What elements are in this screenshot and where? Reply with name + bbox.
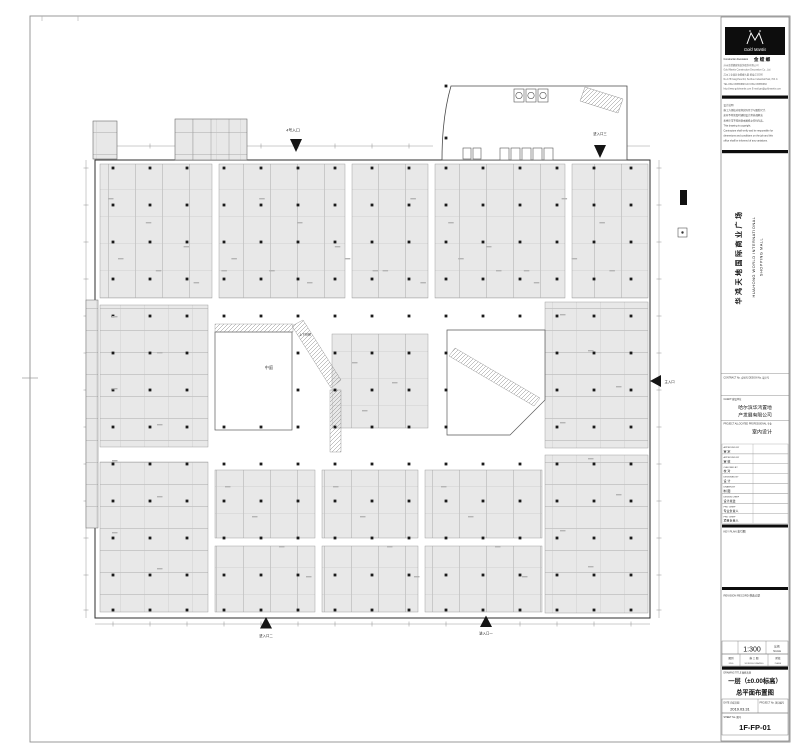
svg-text:项目负责人: 项目负责人 [724,518,739,523]
svg-text:阶段: 阶段 [775,656,781,660]
stair-core-block [93,121,117,159]
date-value: 2019.03.31 [730,707,749,712]
escalator-label: 上下扶梯 [299,332,311,337]
brand-line-en: Construction Decoration [724,58,749,61]
svg-text:审 核: 审 核 [724,458,731,463]
svg-text:office shall be informed of an: office shall be informed of any variatio… [724,140,768,143]
svg-text:dimensions and conditions on t: dimensions and conditions on the job and… [724,135,774,138]
brand-line-zh: 金 螳 螂 [753,56,771,63]
project-name-zh: 华鸿天地国际商业广场 [734,210,743,305]
scale-label-en: SCALE [773,650,781,653]
project-name-en2: SHOPPING MALL [759,238,764,277]
entrance-label: 进入口三 [593,131,607,136]
atrium-label: 中庭 [265,364,274,371]
drawing-sheet: 4号入口 进入口三 主入口 进入口二 进入口一 中庭 上下扶梯 [0,0,800,755]
project-name-en1: HUAHONG WORLD INTERNATIONAL [751,216,756,297]
client-name-line2: 产发展有限公司 [738,412,772,419]
legend-symbol-1 [680,190,687,205]
entrance-label: 4号入口 [286,128,300,133]
svg-text:Gold Mantis Construction Decor: Gold Mantis Construction Decoration Co.,… [724,69,772,72]
entrance-4: 4号入口 [286,128,302,153]
entrance-arrow-down-icon [290,139,302,152]
svg-text:Contractors shall verify and b: Contractors shall verify and be responsi… [724,130,774,133]
sheet-no-label: SHEET No. 图号 [724,715,742,719]
entrance-label: 进入口二 [259,633,273,638]
svg-text:如有不符须及时通知设计师协调解决,: 如有不符须及时通知设计师协调解决, [724,113,764,117]
drawing-title-line1: 一层（±0.00标高） [728,676,782,685]
svg-text:WORKING DRAWING: WORKING DRAWING [745,662,764,665]
divider-bar [722,525,788,528]
svg-text:校 对: 校 对 [724,468,731,473]
scale-value: 1:300 [743,647,761,654]
svg-text:This drawing is copyright.: This drawing is copyright. [724,124,752,127]
client-name-line1: 哈尔滨华鸿置地 [738,404,772,411]
svg-text:No.178 Fangzhou Rd, Suzhou Ind: No.178 Fangzhou Rd, Suzhou Industrial Pa… [724,78,779,81]
entrance-arrow-up-icon [260,617,272,629]
svg-text:设计说明:: 设计说明: [724,103,735,107]
divider-bar [722,587,788,590]
bridge-hatch-top [215,324,293,332]
left-service-strip [86,300,98,528]
entrance-2: 进入口二 [259,617,273,638]
svg-text:设计总监: 设计总监 [724,498,736,503]
svg-text:http://www.goldmantis.com E-m: http://www.goldmantis.com E-mail:gm@gold… [724,88,782,91]
svg-text:未经许可不得复制本图纸之任何内容。: 未经许可不得复制本图纸之任何内容。 [724,118,765,122]
scale-label-zh: 比例 [774,645,780,649]
svg-text:审 定: 审 定 [724,448,731,453]
plaza-doors [463,148,553,160]
svg-text:施 工 图: 施 工 图 [750,656,759,660]
entrance-main: 主入口 [650,375,675,387]
svg-text:专业负责人: 专业负责人 [724,508,739,513]
gold-mantis-logo: Gold Mantis [725,27,785,55]
divider-bar [722,667,788,670]
floor-plan-sheet-svg: 4号入口 进入口三 主入口 进入口二 进入口一 中庭 上下扶梯 [0,0,800,755]
professional-value: 室内设计 [752,429,772,436]
key-plan-label: KEY PLAN 索引图 [724,530,746,534]
sheet-no-value: 1F-FP-01 [739,723,771,732]
revision-label: REVISION RECORD 修改记录 [724,594,761,598]
drawing-title-line2: 总平面布置图 [736,688,774,697]
svg-text:图别: 图别 [728,656,734,660]
atrium-court-left [215,332,292,430]
svg-text:制 图: 制 图 [724,488,731,493]
divider-bar [722,96,788,99]
entrance-arrow-left-icon [650,375,661,387]
svg-text:TEL:0512-65855888 FAX:0512-65: TEL:0512-65855888 FAX:0512-65855666 [724,83,768,86]
divider-bar [722,150,788,153]
brand-script: Gold Mantis [744,47,767,52]
svg-text:施工方须核对现场实际尺寸与图纸尺寸,: 施工方须核对现场实际尺寸与图纸尺寸, [724,108,766,112]
entrance-label: 进入口一 [479,631,493,636]
legend-symbol-2 [678,228,687,237]
svg-text:DWG: DWG [729,663,734,665]
escalator-hatch-center [330,390,341,452]
title-block: Gold Mantis Construction Decoration 金 螳 … [721,17,789,741]
svg-text:设 计: 设 计 [724,478,731,483]
plan-drawing: 4号入口 进入口三 主入口 进入口二 进入口一 中庭 上下扶梯 [84,85,688,638]
entrance-label: 主入口 [665,379,675,384]
svg-text:PHASE: PHASE [775,662,782,665]
